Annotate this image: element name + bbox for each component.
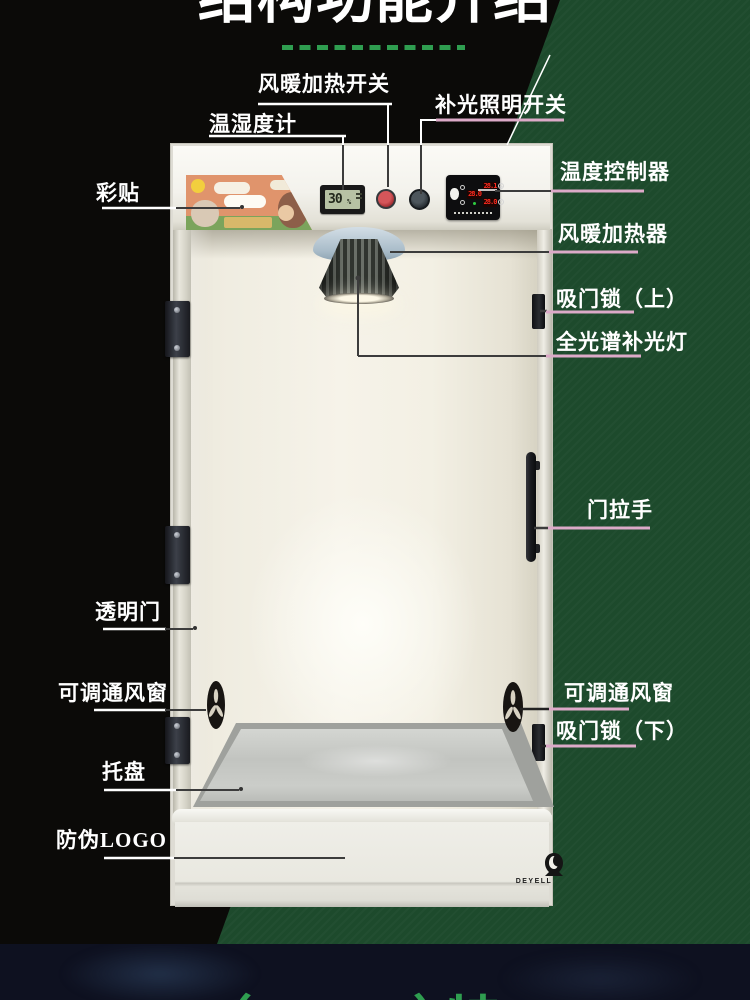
label-tray: 托盘 (102, 760, 146, 785)
label-fan-heater: 风暖加热器 (558, 222, 668, 247)
label-fill-light-switch: 补光照明开关 (435, 93, 567, 118)
label-heater-switch: 风暖加热开关 (258, 72, 390, 97)
poster: 结构功能介绍 30% (0, 0, 750, 1000)
label-vent-right: 可调通风窗 (564, 681, 674, 706)
label-vent-left: 可调通风窗 (58, 681, 168, 706)
label-anti-counterfeit-logo: 防伪LOGO (56, 828, 167, 853)
label-transparent-door: 透明门 (95, 600, 161, 625)
label-color-sticker: 彩贴 (96, 181, 140, 206)
label-thermo-hygrometer: 温湿度计 (209, 112, 297, 137)
label-door-handle: 门拉手 (587, 498, 653, 523)
label-door-lock-upper: 吸门锁（上） (556, 287, 688, 312)
label-temperature-controller: 温度控制器 (560, 160, 670, 185)
label-full-spectrum-light: 全光谱补光灯 (556, 330, 688, 355)
label-door-lock-lower: 吸门锁（下） (556, 719, 688, 744)
